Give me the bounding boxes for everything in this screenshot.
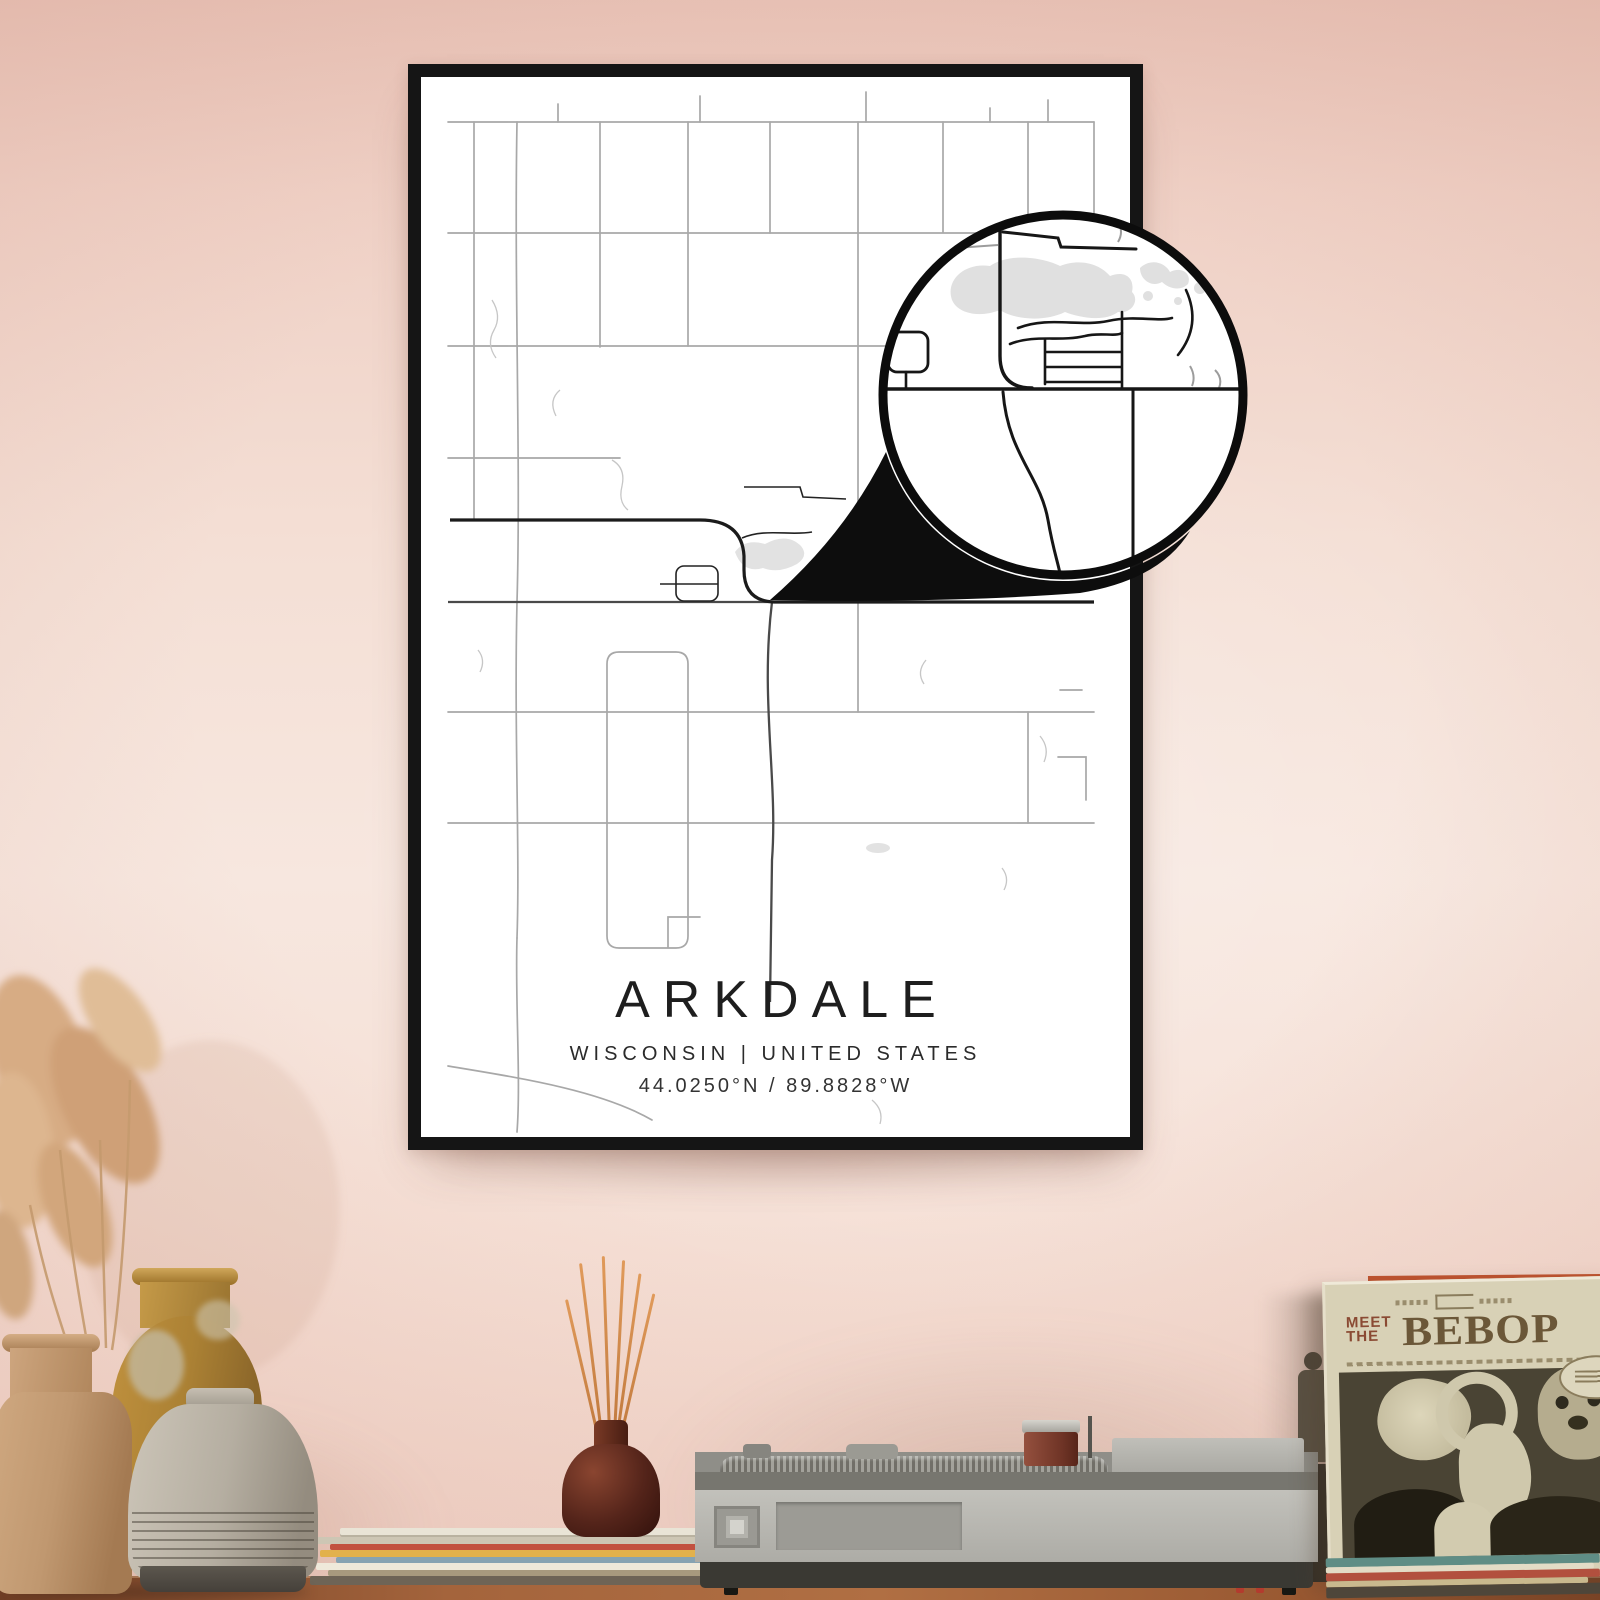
preset-button-panel: [776, 1502, 962, 1550]
gray-vase-base: [140, 1566, 306, 1592]
ochre-vase-glaze: [128, 1330, 184, 1400]
sleeve-title-small: MEET THE: [1346, 1316, 1392, 1345]
sleeve-title-large: BEBOP: [1402, 1304, 1561, 1355]
artwork-figure-light: [1434, 1501, 1497, 1558]
poster-caption: ARKDALE WISCONSIN | UNITED STATES 44.025…: [421, 970, 1130, 1098]
record-stack-right: [1326, 1554, 1600, 1600]
poster-shadow: [430, 1148, 1130, 1190]
gray-vase-ribs: [132, 1512, 314, 1572]
small-pond: [866, 843, 890, 853]
label-text-dashes: [1479, 1298, 1513, 1304]
ochre-vase-glaze: [196, 1300, 240, 1340]
platter-adapter: [846, 1444, 898, 1459]
room-scene: ARKDALE WISCONSIN | UNITED STATES 44.025…: [0, 0, 1600, 1600]
antenna: [1088, 1416, 1092, 1458]
player-base: [700, 1562, 1313, 1588]
player-top-rim: [695, 1472, 1318, 1490]
cigarette-lighter: [1024, 1432, 1078, 1466]
diffuser-bottle: [562, 1444, 660, 1537]
sleeve-subtitle-dashes: [1347, 1357, 1599, 1366]
poster-title: ARKDALE: [421, 970, 1130, 1030]
label-text-dashes: [1395, 1300, 1429, 1306]
rear-knob: [743, 1444, 771, 1458]
tan-vase: [0, 1392, 132, 1594]
tan-vase-neck: [10, 1348, 92, 1398]
figurine-head: [1304, 1352, 1322, 1370]
medium-roads: [448, 602, 1094, 1002]
magnifier-callout: [560, 196, 1264, 640]
sleeve-word-the: THE: [1346, 1328, 1379, 1346]
record-sleeve: MEET THE BEBOP: [1322, 1276, 1600, 1581]
poster-coordinates: 44.0250°N / 89.8828°W: [421, 1075, 1130, 1098]
power-button-cap: [726, 1516, 748, 1538]
poster-subtitle: WISCONSIN | UNITED STATES: [421, 1043, 1130, 1066]
sleeve-artwork: [1339, 1366, 1600, 1558]
magazine-stack: [310, 1528, 748, 1588]
